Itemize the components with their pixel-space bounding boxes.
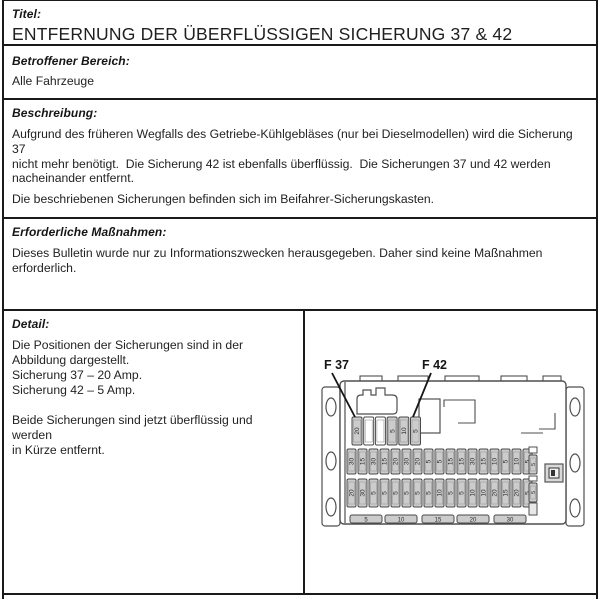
svg-text:15: 15: [360, 458, 367, 466]
beschreibung-paragraph-2: Die beschriebenen Sicherungen befinden s…: [4, 192, 596, 207]
bulletin-document: Titel: ENTFERNUNG DER ÜBERFLÜSSIGEN SICH…: [2, 0, 598, 599]
beschreibung-paragraph-1: Aufgrund des früheren Wegfalls des Getri…: [4, 127, 596, 186]
svg-text:5: 5: [531, 463, 537, 466]
section-detail: Detail: Die Positionen der Sicherungen s…: [4, 311, 596, 595]
fuse: 5: [369, 479, 378, 507]
fuse: 5: [411, 417, 421, 445]
f37-callout-label: F 37: [324, 358, 349, 372]
spare-fuse: 10: [385, 515, 417, 523]
mounting-hole: [326, 398, 336, 416]
svg-text:5: 5: [437, 459, 444, 463]
fuse: [375, 417, 385, 445]
fuse: 10: [399, 417, 409, 445]
fuse: [364, 417, 374, 445]
detail-label: Detail:: [4, 311, 303, 331]
svg-text:30: 30: [404, 458, 411, 466]
svg-text:5: 5: [459, 491, 466, 495]
svg-text:10: 10: [401, 427, 408, 435]
mounting-hole: [570, 499, 580, 517]
fuse: 5: [529, 455, 537, 474]
fuse: 5: [424, 479, 433, 507]
fuse: 5: [387, 417, 397, 445]
svg-text:5: 5: [404, 491, 411, 495]
fuse: 30: [402, 449, 411, 474]
detail-diagram-cell: 2051053015301520302055151530151051055203…: [305, 311, 596, 593]
fuse: 20: [512, 479, 521, 507]
svg-text:10: 10: [470, 489, 477, 497]
fuse: 20: [413, 449, 422, 474]
fuse: 15: [358, 449, 367, 474]
bereich-text: Alle Fahrzeuge: [12, 74, 588, 89]
fuse: 20: [391, 449, 400, 474]
svg-text:20: 20: [514, 489, 521, 497]
fuse-bracket: [529, 447, 537, 453]
svg-text:5: 5: [426, 459, 433, 463]
fuse: 10: [435, 479, 444, 507]
fuse: 10: [490, 449, 499, 474]
fuse: 5: [413, 479, 422, 507]
fuse: 5: [424, 449, 433, 474]
f42-callout-label: F 42: [422, 358, 447, 372]
svg-text:20: 20: [349, 489, 356, 497]
fuse: 30: [358, 479, 367, 507]
massnahmen-paragraph: Dieses Bulletin wurde nur zu Information…: [4, 246, 596, 276]
service-bulletin-page: { "document": { "titel_label": "Titel:",…: [0, 0, 604, 599]
svg-text:5: 5: [389, 429, 396, 433]
bereich-label: Betroffener Bereich:: [4, 46, 596, 68]
svg-text:10: 10: [514, 458, 521, 466]
fuse: 30: [369, 449, 378, 474]
relay-icon-mark: [551, 470, 555, 476]
svg-text:20: 20: [415, 458, 422, 466]
fuse: 5: [457, 479, 466, 507]
svg-text:20: 20: [492, 489, 499, 497]
spare-fuse: 5: [350, 515, 382, 523]
fuse: 5: [501, 449, 510, 474]
svg-text:5: 5: [448, 491, 455, 495]
mounting-hole: [326, 452, 336, 470]
svg-text:5: 5: [503, 459, 510, 463]
beschreibung-label: Beschreibung:: [4, 100, 596, 120]
fuse: 5: [391, 479, 400, 507]
fuse-bracket: [529, 476, 537, 481]
svg-text:30: 30: [371, 458, 378, 466]
svg-text:20: 20: [354, 427, 361, 435]
svg-text:15: 15: [382, 458, 389, 466]
next-section-sliver: [4, 595, 596, 600]
spare-fuse: 20: [457, 515, 489, 523]
svg-text:10: 10: [481, 489, 488, 497]
svg-text:15: 15: [459, 458, 466, 466]
spare-fuse: 30: [494, 515, 526, 523]
svg-text:5: 5: [413, 429, 420, 433]
svg-text:20: 20: [393, 458, 400, 466]
massnahmen-label: Erforderliche Maßnahmen:: [4, 219, 596, 239]
fuse: 10: [479, 479, 488, 507]
mounting-hole: [326, 498, 336, 516]
detail-text-cell: Detail: Die Positionen der Sicherungen s…: [4, 311, 305, 593]
svg-text:10: 10: [398, 517, 405, 523]
svg-text:30: 30: [507, 517, 514, 523]
detail-paragraphs: Die Positionen der Sicherungen sind in d…: [4, 338, 303, 458]
svg-text:5: 5: [531, 491, 537, 494]
svg-text:5: 5: [415, 491, 422, 495]
fuse: 20: [352, 417, 362, 445]
svg-text:15: 15: [481, 458, 488, 466]
spare-fuse: 15: [422, 515, 454, 523]
fuse: 10: [512, 449, 521, 474]
fuse: 5: [402, 479, 411, 507]
svg-text:5: 5: [382, 491, 389, 495]
fuse: 15: [446, 449, 455, 474]
fuse-box-diagram: 2051053015301520302055151530151051055203…: [305, 311, 596, 593]
relay-box: [419, 399, 440, 433]
fuse: 15: [479, 449, 488, 474]
svg-text:5: 5: [371, 491, 378, 495]
svg-text:20: 20: [470, 517, 477, 523]
titel-label: Titel:: [4, 1, 596, 21]
svg-text:15: 15: [503, 489, 510, 497]
section-betroffener-bereich: Betroffener Bereich: Alle Fahrzeuge: [4, 46, 596, 100]
fuse: 15: [380, 449, 389, 474]
bulletin-title: ENTFERNUNG DER ÜBERFLÜSSIGEN SICHERUNG 3…: [4, 21, 596, 45]
svg-text:15: 15: [435, 517, 442, 523]
fuse: 20: [347, 479, 356, 507]
fuse: 15: [501, 479, 510, 507]
fuse: 5: [435, 449, 444, 474]
svg-text:5: 5: [426, 491, 433, 495]
svg-text:30: 30: [470, 458, 477, 466]
fuse: 20: [490, 479, 499, 507]
svg-text:5: 5: [393, 491, 400, 495]
svg-text:30: 30: [349, 458, 356, 466]
fuse: 30: [347, 449, 356, 474]
svg-text:10: 10: [437, 489, 444, 497]
mounting-hole: [570, 398, 580, 416]
svg-text:30: 30: [360, 489, 367, 497]
section-titel: Titel: ENTFERNUNG DER ÜBERFLÜSSIGEN SICH…: [4, 1, 596, 46]
svg-text:15: 15: [448, 458, 455, 466]
fuse-bracket: [529, 503, 537, 515]
fuse: 15: [457, 449, 466, 474]
fuse: 10: [468, 479, 477, 507]
fuse: 5: [380, 479, 389, 507]
section-beschreibung: Beschreibung: Aufgrund des früheren Wegf…: [4, 100, 596, 219]
svg-text:10: 10: [492, 458, 499, 466]
section-erforderliche-massnahmen: Erforderliche Maßnahmen: Dieses Bulletin…: [4, 219, 596, 311]
fuse: 30: [468, 449, 477, 474]
fuse: 5: [446, 479, 455, 507]
mounting-hole: [570, 454, 580, 472]
fuse: 5: [529, 483, 537, 502]
